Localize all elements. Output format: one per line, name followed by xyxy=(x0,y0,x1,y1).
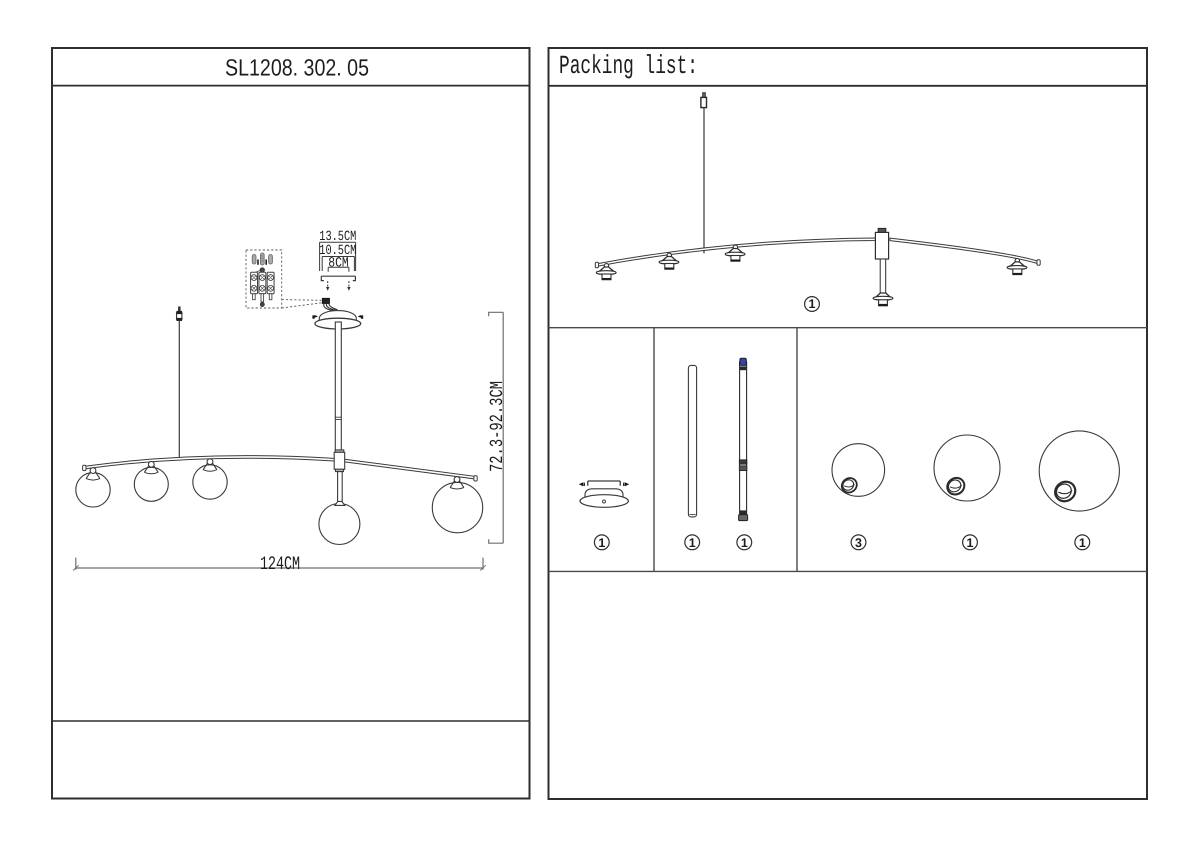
svg-text:1: 1 xyxy=(741,536,748,550)
svg-text:72.3-92.3CM: 72.3-92.3CM xyxy=(487,381,508,472)
svg-text:1: 1 xyxy=(1079,536,1086,550)
svg-text:1: 1 xyxy=(598,536,605,550)
svg-text:8CM: 8CM xyxy=(328,255,349,271)
svg-text:1: 1 xyxy=(689,536,696,550)
svg-text:Packing list:: Packing list: xyxy=(559,53,698,82)
svg-text:124CM: 124CM xyxy=(260,553,300,575)
svg-text:1: 1 xyxy=(809,297,816,311)
svg-text:SL1208. 302. 05: SL1208. 302. 05 xyxy=(225,55,369,81)
svg-text:3: 3 xyxy=(855,536,862,550)
svg-text:1: 1 xyxy=(967,536,974,550)
